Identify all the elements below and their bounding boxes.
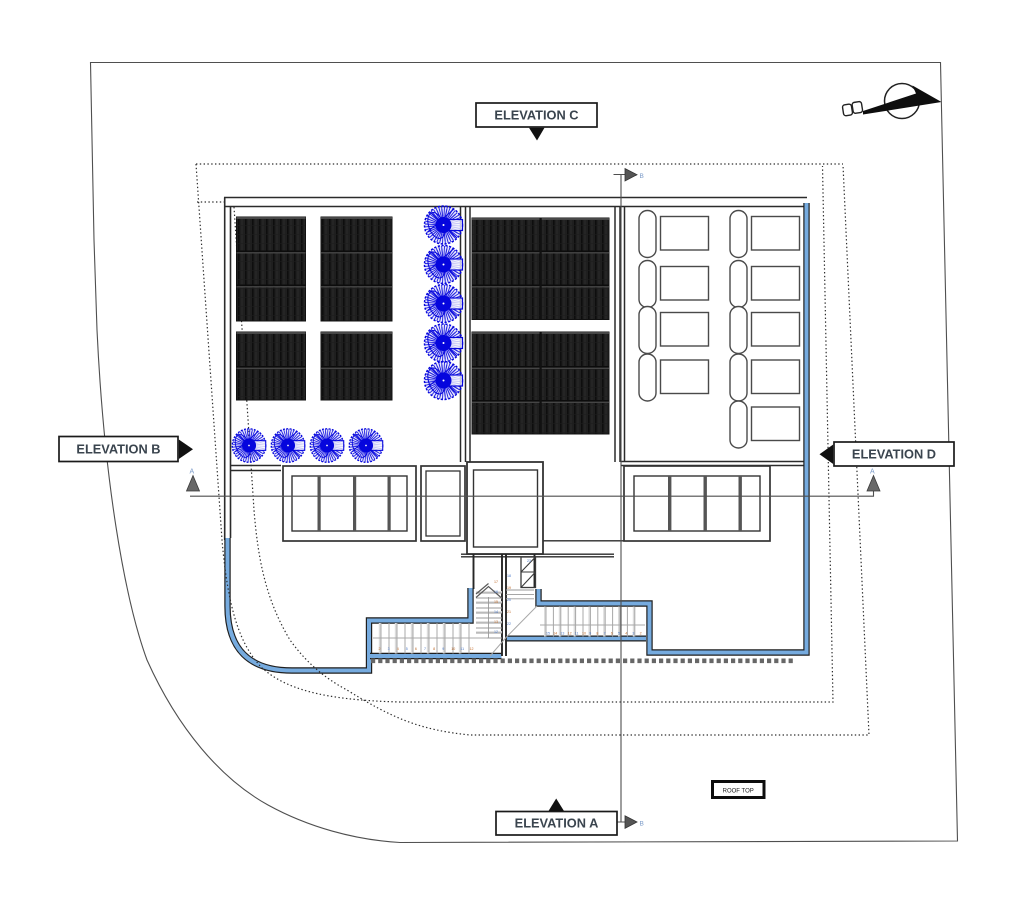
svg-text:ELEVATION C: ELEVATION C — [494, 108, 578, 123]
svg-text:ELEVATION B: ELEVATION B — [76, 442, 160, 457]
svg-text:17: 17 — [494, 580, 498, 584]
svg-text:ELEVATION A: ELEVATION A — [515, 816, 599, 831]
svg-text:18: 18 — [507, 574, 511, 578]
svg-text:21: 21 — [507, 610, 511, 614]
svg-text:14: 14 — [494, 610, 498, 614]
svg-text:5: 5 — [618, 632, 620, 636]
svg-text:16: 16 — [494, 590, 498, 594]
svg-text:13: 13 — [494, 620, 498, 624]
svg-text:8: 8 — [596, 632, 598, 636]
svg-text:14: 14 — [553, 632, 557, 636]
svg-text:12: 12 — [494, 630, 498, 634]
svg-text:A: A — [870, 469, 875, 476]
svg-text:4: 4 — [625, 632, 627, 636]
svg-text:20: 20 — [507, 598, 511, 602]
svg-text:10: 10 — [451, 647, 455, 651]
svg-text:B: B — [640, 173, 644, 180]
svg-text:3: 3 — [388, 647, 390, 651]
svg-text:10: 10 — [582, 632, 586, 636]
svg-text:12: 12 — [568, 632, 572, 636]
svg-text:ROOF TOP: ROOF TOP — [723, 788, 754, 794]
svg-text:22: 22 — [507, 622, 511, 626]
svg-text:4: 4 — [397, 647, 399, 651]
svg-text:2: 2 — [640, 632, 642, 636]
svg-text:9: 9 — [589, 632, 591, 636]
svg-text:6: 6 — [611, 632, 613, 636]
svg-text:19: 19 — [507, 586, 511, 590]
svg-text:8: 8 — [433, 647, 435, 651]
svg-text:12: 12 — [470, 647, 474, 651]
svg-text:15: 15 — [494, 600, 498, 604]
svg-text:5: 5 — [406, 647, 408, 651]
svg-text:13: 13 — [560, 632, 564, 636]
svg-text:11: 11 — [460, 647, 464, 651]
svg-text:7: 7 — [604, 632, 606, 636]
svg-text:6: 6 — [415, 647, 417, 651]
svg-text:23: 23 — [527, 559, 531, 563]
svg-text:9: 9 — [442, 647, 444, 651]
svg-text:ELEVATION D: ELEVATION D — [852, 447, 936, 462]
svg-text:15: 15 — [546, 632, 550, 636]
svg-text:11: 11 — [575, 632, 579, 636]
svg-text:B: B — [640, 821, 644, 828]
svg-text:3: 3 — [632, 632, 634, 636]
svg-text:A: A — [190, 469, 195, 476]
svg-text:7: 7 — [424, 647, 426, 651]
svg-text:2: 2 — [379, 647, 381, 651]
